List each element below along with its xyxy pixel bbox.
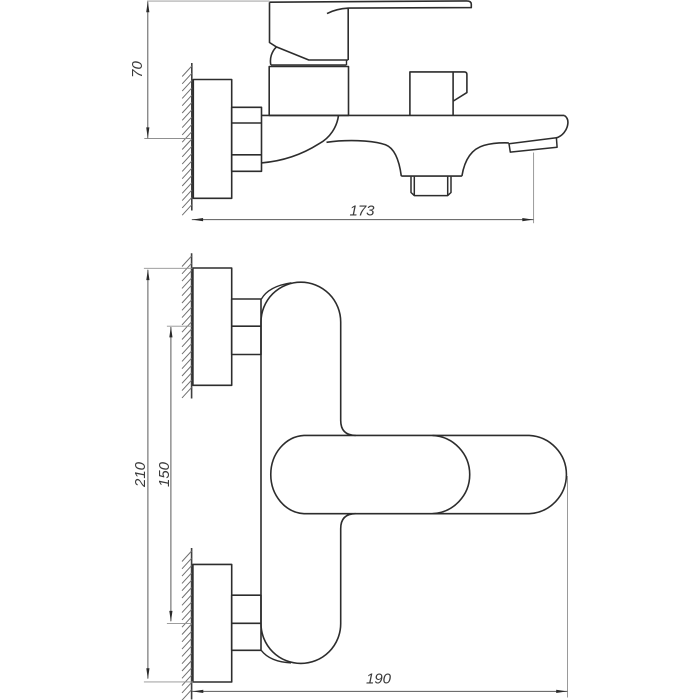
svg-text:190: 190: [366, 671, 392, 688]
svg-text:173: 173: [349, 203, 375, 220]
svg-text:150: 150: [156, 461, 173, 487]
svg-text:70: 70: [129, 61, 146, 78]
svg-text:210: 210: [132, 461, 149, 488]
